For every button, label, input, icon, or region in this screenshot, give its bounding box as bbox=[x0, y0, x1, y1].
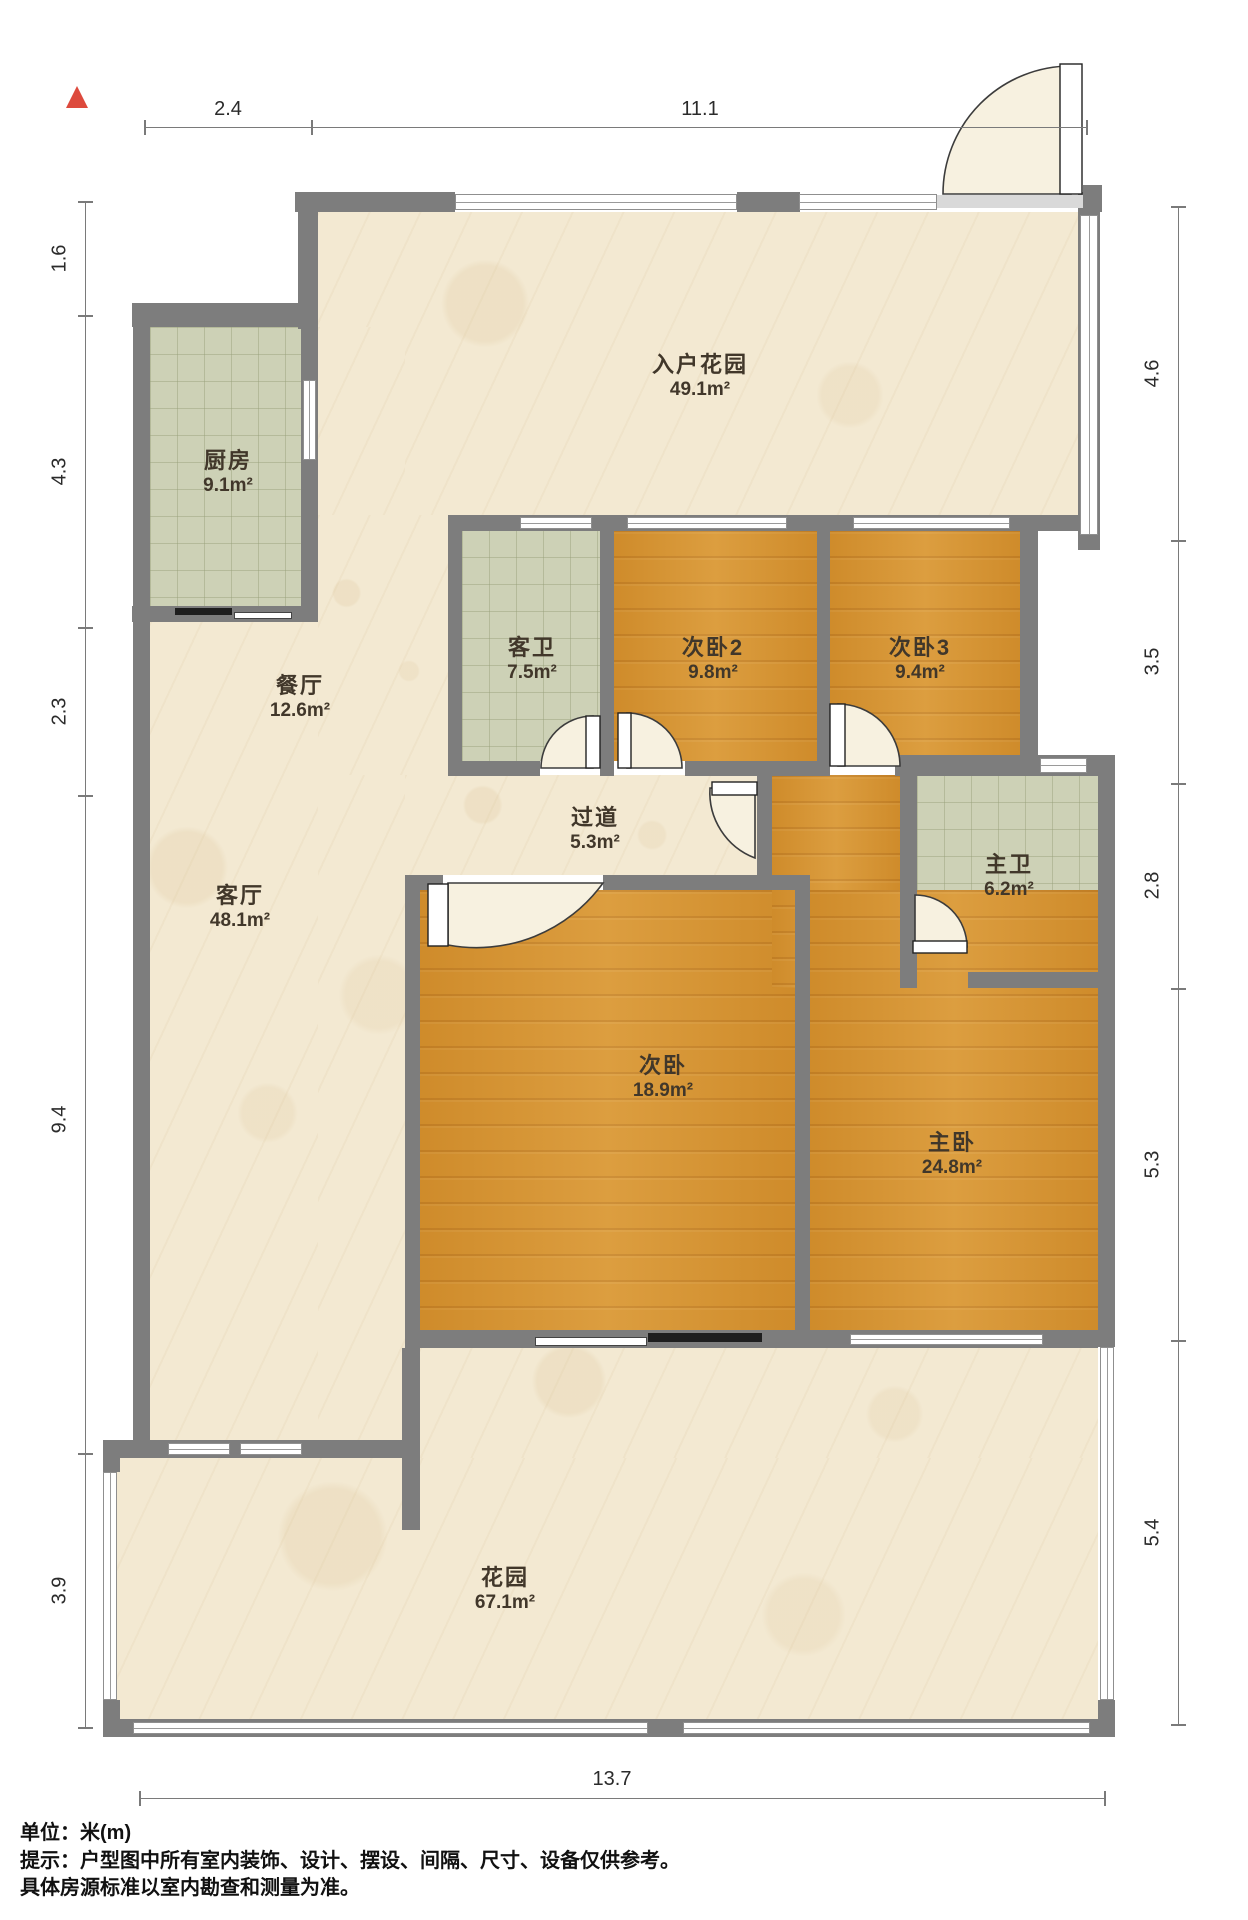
wall-bedroom-left bbox=[405, 875, 420, 1348]
room-area-dining: 12.6m² bbox=[270, 700, 330, 722]
dim-right-2-8: 2.8 bbox=[1142, 846, 1165, 926]
dimtick-right-5 bbox=[1171, 1340, 1186, 1342]
dimtick-top-3 bbox=[1086, 120, 1088, 135]
floor-passage bbox=[318, 515, 448, 775]
wall-kitchen-top bbox=[132, 303, 318, 327]
dim-bottom-13-7: 13.7 bbox=[572, 1768, 652, 1791]
dimline-right bbox=[1178, 207, 1179, 1725]
wall-garden-step-stub bbox=[402, 1348, 420, 1530]
footer-tip-line2: 具体房源标准以室内勘查和测量为准。 bbox=[20, 1875, 360, 1902]
wall-right-exterior-lower bbox=[1098, 755, 1115, 1347]
window-entry-garden-top-1 bbox=[455, 194, 737, 210]
dimline-left bbox=[85, 202, 86, 1728]
wall-right-corner-bottom bbox=[1098, 1700, 1115, 1737]
wall-master-bath-bottom-l bbox=[900, 972, 913, 988]
room-name-hallway: 过道 bbox=[570, 800, 620, 832]
door-entry bbox=[943, 66, 1071, 194]
dimtick-left-6 bbox=[78, 1727, 93, 1729]
wall-top-pier bbox=[737, 192, 800, 212]
window-kitchen-right bbox=[303, 380, 316, 460]
footer-tip-line1: 提示：户型图中所有室内装饰、设计、摆设、间隔、尺寸、设备仅供参考。 bbox=[20, 1848, 680, 1875]
window-guest-bath-top bbox=[520, 517, 592, 529]
floor-master-bedroom bbox=[810, 890, 1098, 1330]
door-entry-leaf bbox=[1060, 64, 1082, 194]
window-master-bottom bbox=[850, 1334, 1043, 1345]
dim-left-2-3: 2.3 bbox=[49, 672, 72, 752]
dimtick-left-3 bbox=[78, 627, 93, 629]
dim-top-11-1: 11.1 bbox=[660, 98, 740, 121]
dimtick-right-2 bbox=[1171, 540, 1186, 542]
wall-garden-left-corner-top bbox=[103, 1440, 120, 1472]
floor-living-dining bbox=[150, 622, 318, 1440]
wall-bedroom-master-divider bbox=[795, 875, 810, 1348]
kitchen-sliding-door-dark bbox=[175, 608, 232, 615]
room-area-bedroom3: 9.4m² bbox=[889, 662, 951, 684]
window-entry-garden-right bbox=[1080, 215, 1098, 535]
room-name-entry-garden: 入户花园 bbox=[652, 347, 748, 379]
dimtick-right-4 bbox=[1171, 988, 1186, 990]
dimtick-top-1 bbox=[144, 120, 146, 135]
room-area-hallway: 5.3m² bbox=[570, 832, 620, 854]
room-name-garden: 花园 bbox=[475, 1560, 535, 1592]
room-label-guest-bath: 客卫 7.5m² bbox=[507, 630, 557, 684]
room-area-living: 48.1m² bbox=[210, 910, 270, 932]
room-area-bedroom2: 9.8m² bbox=[682, 662, 744, 684]
window-living-bottom-2 bbox=[240, 1443, 302, 1455]
room-label-hallway: 过道 5.3m² bbox=[570, 800, 620, 854]
wall-bedroom2-right bbox=[817, 530, 830, 776]
window-bedroom2-top bbox=[627, 517, 787, 529]
dimtick-left-4 bbox=[78, 795, 93, 797]
window-garden-bottom-2 bbox=[683, 1722, 1090, 1734]
dimline-top bbox=[145, 127, 1087, 128]
dimtick-left-2 bbox=[78, 315, 93, 317]
floor-garden bbox=[117, 1458, 1098, 1719]
room-name-kitchen: 厨房 bbox=[203, 443, 253, 475]
dimtick-left-1 bbox=[78, 201, 93, 203]
room-name-bedroom2: 次卧2 bbox=[682, 630, 744, 662]
wall-master-bath-left bbox=[900, 755, 917, 988]
kitchen-sliding-door-light bbox=[234, 612, 292, 619]
room-name-bedroom: 次卧 bbox=[633, 1048, 693, 1080]
floor-garden-upper bbox=[420, 1348, 1098, 1458]
room-name-living: 客厅 bbox=[210, 878, 270, 910]
wall-bedroom3-right bbox=[1020, 515, 1038, 776]
window-garden-right bbox=[1100, 1347, 1114, 1700]
room-area-guest-bath: 7.5m² bbox=[507, 662, 557, 684]
dimtick-right-3 bbox=[1171, 783, 1186, 785]
dim-left-4-3: 4.3 bbox=[49, 432, 72, 512]
dim-right-5-4: 5.4 bbox=[1142, 1493, 1165, 1573]
wall-hall-master-stub bbox=[757, 775, 772, 877]
dimtick-bottom-2 bbox=[1104, 1791, 1106, 1806]
room-area-kitchen: 9.1m² bbox=[203, 475, 253, 497]
room-label-entry-garden: 入户花园 49.1m² bbox=[652, 347, 748, 401]
dimtick-right-1 bbox=[1171, 206, 1186, 208]
north-arrow-icon bbox=[66, 86, 88, 108]
wall-row-bottom-b bbox=[600, 761, 614, 776]
room-name-master-bath: 主卫 bbox=[984, 847, 1034, 879]
wall-row-bottom-a bbox=[448, 761, 540, 776]
room-label-master-bath: 主卫 6.2m² bbox=[984, 847, 1034, 901]
dimtick-top-2 bbox=[311, 120, 313, 135]
room-area-master-bath: 6.2m² bbox=[984, 879, 1034, 901]
room-name-dining: 餐厅 bbox=[270, 668, 330, 700]
room-label-kitchen: 厨房 9.1m² bbox=[203, 443, 253, 497]
floorplan-canvas: 入户花园 49.1m² 厨房 9.1m² 餐厅 12.6m² 客卫 7.5m² … bbox=[0, 0, 1248, 1920]
room-area-garden: 67.1m² bbox=[475, 1592, 535, 1614]
room-label-master-bedroom: 主卧 24.8m² bbox=[922, 1125, 982, 1179]
wall-top-left bbox=[295, 192, 455, 212]
window-bedroom3-top bbox=[853, 517, 1010, 529]
dim-right-5-3: 5.3 bbox=[1142, 1125, 1165, 1205]
dim-left-3-9: 3.9 bbox=[49, 1551, 72, 1631]
floor-passage-column bbox=[318, 327, 405, 1440]
wall-bedroom-top-r bbox=[603, 875, 810, 890]
window-entry-garden-top-2 bbox=[799, 194, 937, 210]
room-name-master-bedroom: 主卧 bbox=[922, 1125, 982, 1157]
dim-left-9-4: 9.4 bbox=[49, 1080, 72, 1160]
room-label-living: 客厅 48.1m² bbox=[210, 878, 270, 932]
dimtick-bottom-1 bbox=[139, 1791, 141, 1806]
room-label-bedroom: 次卧 18.9m² bbox=[633, 1048, 693, 1102]
dim-top-2-4: 2.4 bbox=[188, 98, 268, 121]
dimtick-left-5 bbox=[78, 1453, 93, 1455]
window-garden-bottom-1 bbox=[133, 1722, 648, 1734]
room-label-garden: 花园 67.1m² bbox=[475, 1560, 535, 1614]
wall-guest-bath-right bbox=[600, 530, 614, 776]
room-label-bedroom3: 次卧3 9.4m² bbox=[889, 630, 951, 684]
dimtick-right-6 bbox=[1171, 1724, 1186, 1726]
wall-row-bottom-c bbox=[685, 761, 830, 776]
room-area-master-bedroom: 24.8m² bbox=[922, 1157, 982, 1179]
room-name-bedroom3: 次卧3 bbox=[889, 630, 951, 662]
entry-door-sill bbox=[937, 195, 1083, 208]
room-name-guest-bath: 客卫 bbox=[507, 630, 557, 662]
dimline-bottom bbox=[140, 1798, 1105, 1799]
floor-bedroom bbox=[420, 890, 795, 1330]
room-area-entry-garden: 49.1m² bbox=[652, 379, 748, 401]
room-label-bedroom2: 次卧2 9.8m² bbox=[682, 630, 744, 684]
bedroom-sliding-door-dark bbox=[648, 1333, 762, 1342]
wall-guest-bath-left bbox=[448, 515, 462, 776]
footer-unit-line: 单位：米(m) bbox=[20, 1820, 131, 1847]
wall-master-bath-bottom-r bbox=[968, 972, 1098, 988]
window-garden-left bbox=[103, 1472, 117, 1700]
dim-right-3-5: 3.5 bbox=[1142, 622, 1165, 702]
dim-right-4-6: 4.6 bbox=[1142, 334, 1165, 414]
window-master-bath-top bbox=[1040, 758, 1087, 773]
room-label-dining: 餐厅 12.6m² bbox=[270, 668, 330, 722]
wall-kitchen-right bbox=[301, 327, 318, 622]
window-living-bottom-1 bbox=[168, 1443, 230, 1455]
dim-left-1-6: 1.6 bbox=[49, 219, 72, 299]
bedroom-sliding-door-light bbox=[535, 1337, 647, 1346]
room-area-bedroom: 18.9m² bbox=[633, 1080, 693, 1102]
wall-left-exterior bbox=[133, 327, 150, 1458]
